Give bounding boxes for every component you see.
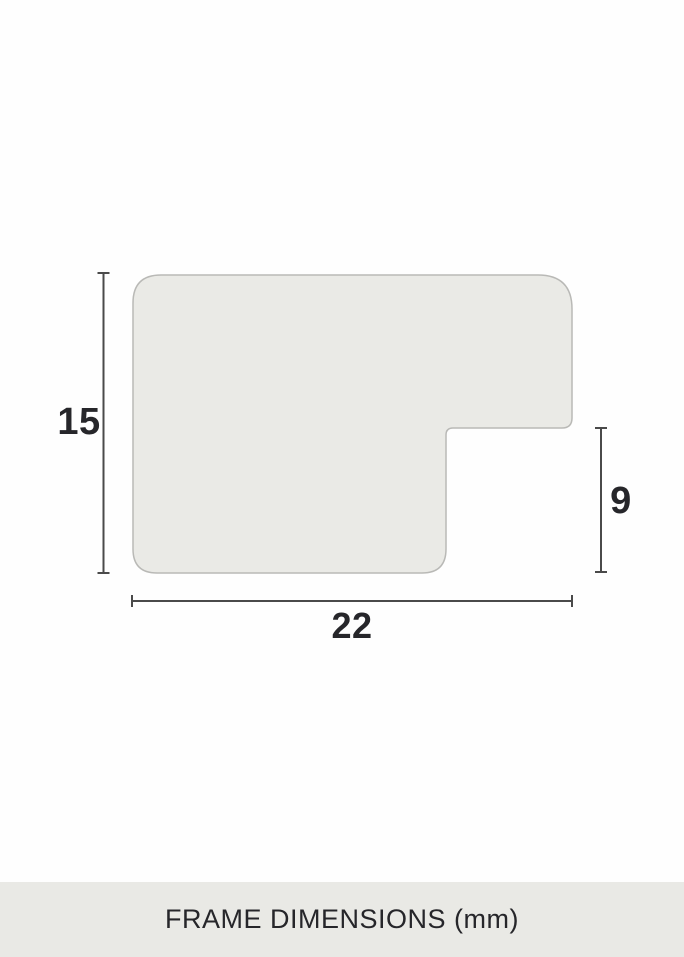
frame-profile-shape <box>133 275 572 573</box>
rabbet-dimension-label: 9 <box>610 482 632 520</box>
footer-title: FRAME DIMENSIONS (mm) <box>165 904 519 935</box>
height-dimension-label: 15 <box>57 403 100 441</box>
frame-dimensions-diagram: 15 9 22 FRAME DIMENSIONS (mm) <box>0 0 684 957</box>
footer-bar: FRAME DIMENSIONS (mm) <box>0 882 684 957</box>
rabbet-dimension-line <box>595 428 607 572</box>
width-dimension-label: 22 <box>331 608 372 644</box>
profile-diagram-canvas <box>0 0 684 882</box>
